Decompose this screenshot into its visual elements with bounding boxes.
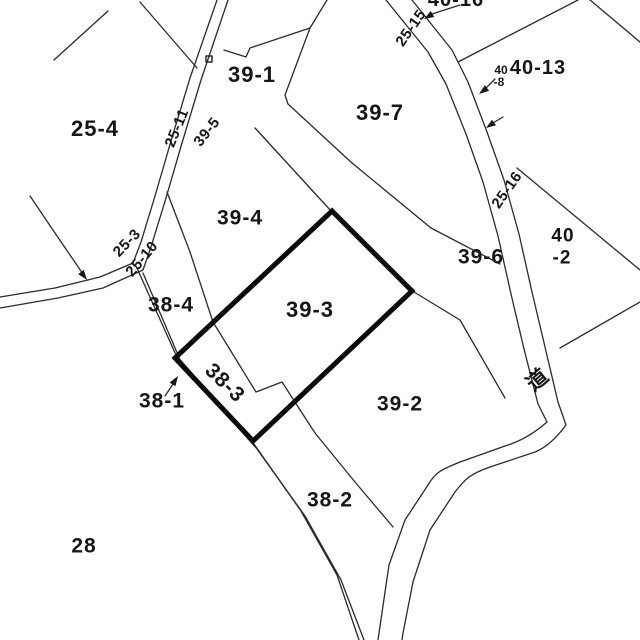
boundary-line-40-2-south [560, 302, 640, 348]
parcel-label-38-1: 38-1 [139, 391, 185, 412]
boundary-line-topright-corner [590, 0, 640, 42]
road-c-edge-right [402, 0, 566, 640]
boundary-line-25-3 [30, 196, 85, 277]
road-a-edge-left [0, 0, 217, 297]
parcel-label-39-3: 39-3 [286, 299, 334, 321]
parcel-label-39-6: 39-6 [458, 247, 504, 268]
parcel-label-40-13: 40-13 [510, 58, 566, 78]
pointer-arrow-38-1 [170, 376, 178, 386]
parcel-label-40-8-line2: -8 [494, 76, 505, 88]
boundary-line-39-1-north [224, 28, 310, 57]
leader-line-40-13 [493, 117, 503, 123]
boundary-line-39-6-39-2 [414, 292, 505, 398]
parcel-label-28: 28 [71, 536, 96, 557]
boundary-line-40-13-40-2 [517, 168, 640, 270]
parcel-label-40-2-line1: 40 [551, 227, 574, 246]
parcel-label-40-16-partial: 40-16 [428, 0, 484, 10]
parcel-label-39-4: 39-4 [217, 208, 263, 229]
road-b-edge-lower [143, 273, 364, 640]
parcel-label-40-2-line2: -2 [553, 249, 572, 268]
parcel-label-38-2: 38-2 [307, 490, 353, 511]
road-b-edge-upper [136, 266, 359, 640]
boundary-line-topleft [54, 11, 108, 60]
parcel-label-38-4: 38-4 [148, 295, 194, 316]
parcel-label-39-1: 39-1 [228, 64, 276, 86]
boundary-line-25-4-north [140, 2, 197, 68]
cadastral-map: 25-4 39-1 39-7 40-13 39-4 38-4 39-3 39-6… [0, 0, 640, 640]
boundary-line-39-1-39-4 [255, 128, 332, 212]
parcel-label-39-2: 39-2 [377, 394, 423, 415]
road-c-edge-left [378, 0, 547, 640]
parcel-label-39-7: 39-7 [356, 102, 404, 124]
pointer-arrow-40-13 [486, 120, 496, 128]
parcel-label-25-4: 25-4 [71, 118, 119, 140]
pointer-arrow-25-3 [78, 270, 87, 280]
